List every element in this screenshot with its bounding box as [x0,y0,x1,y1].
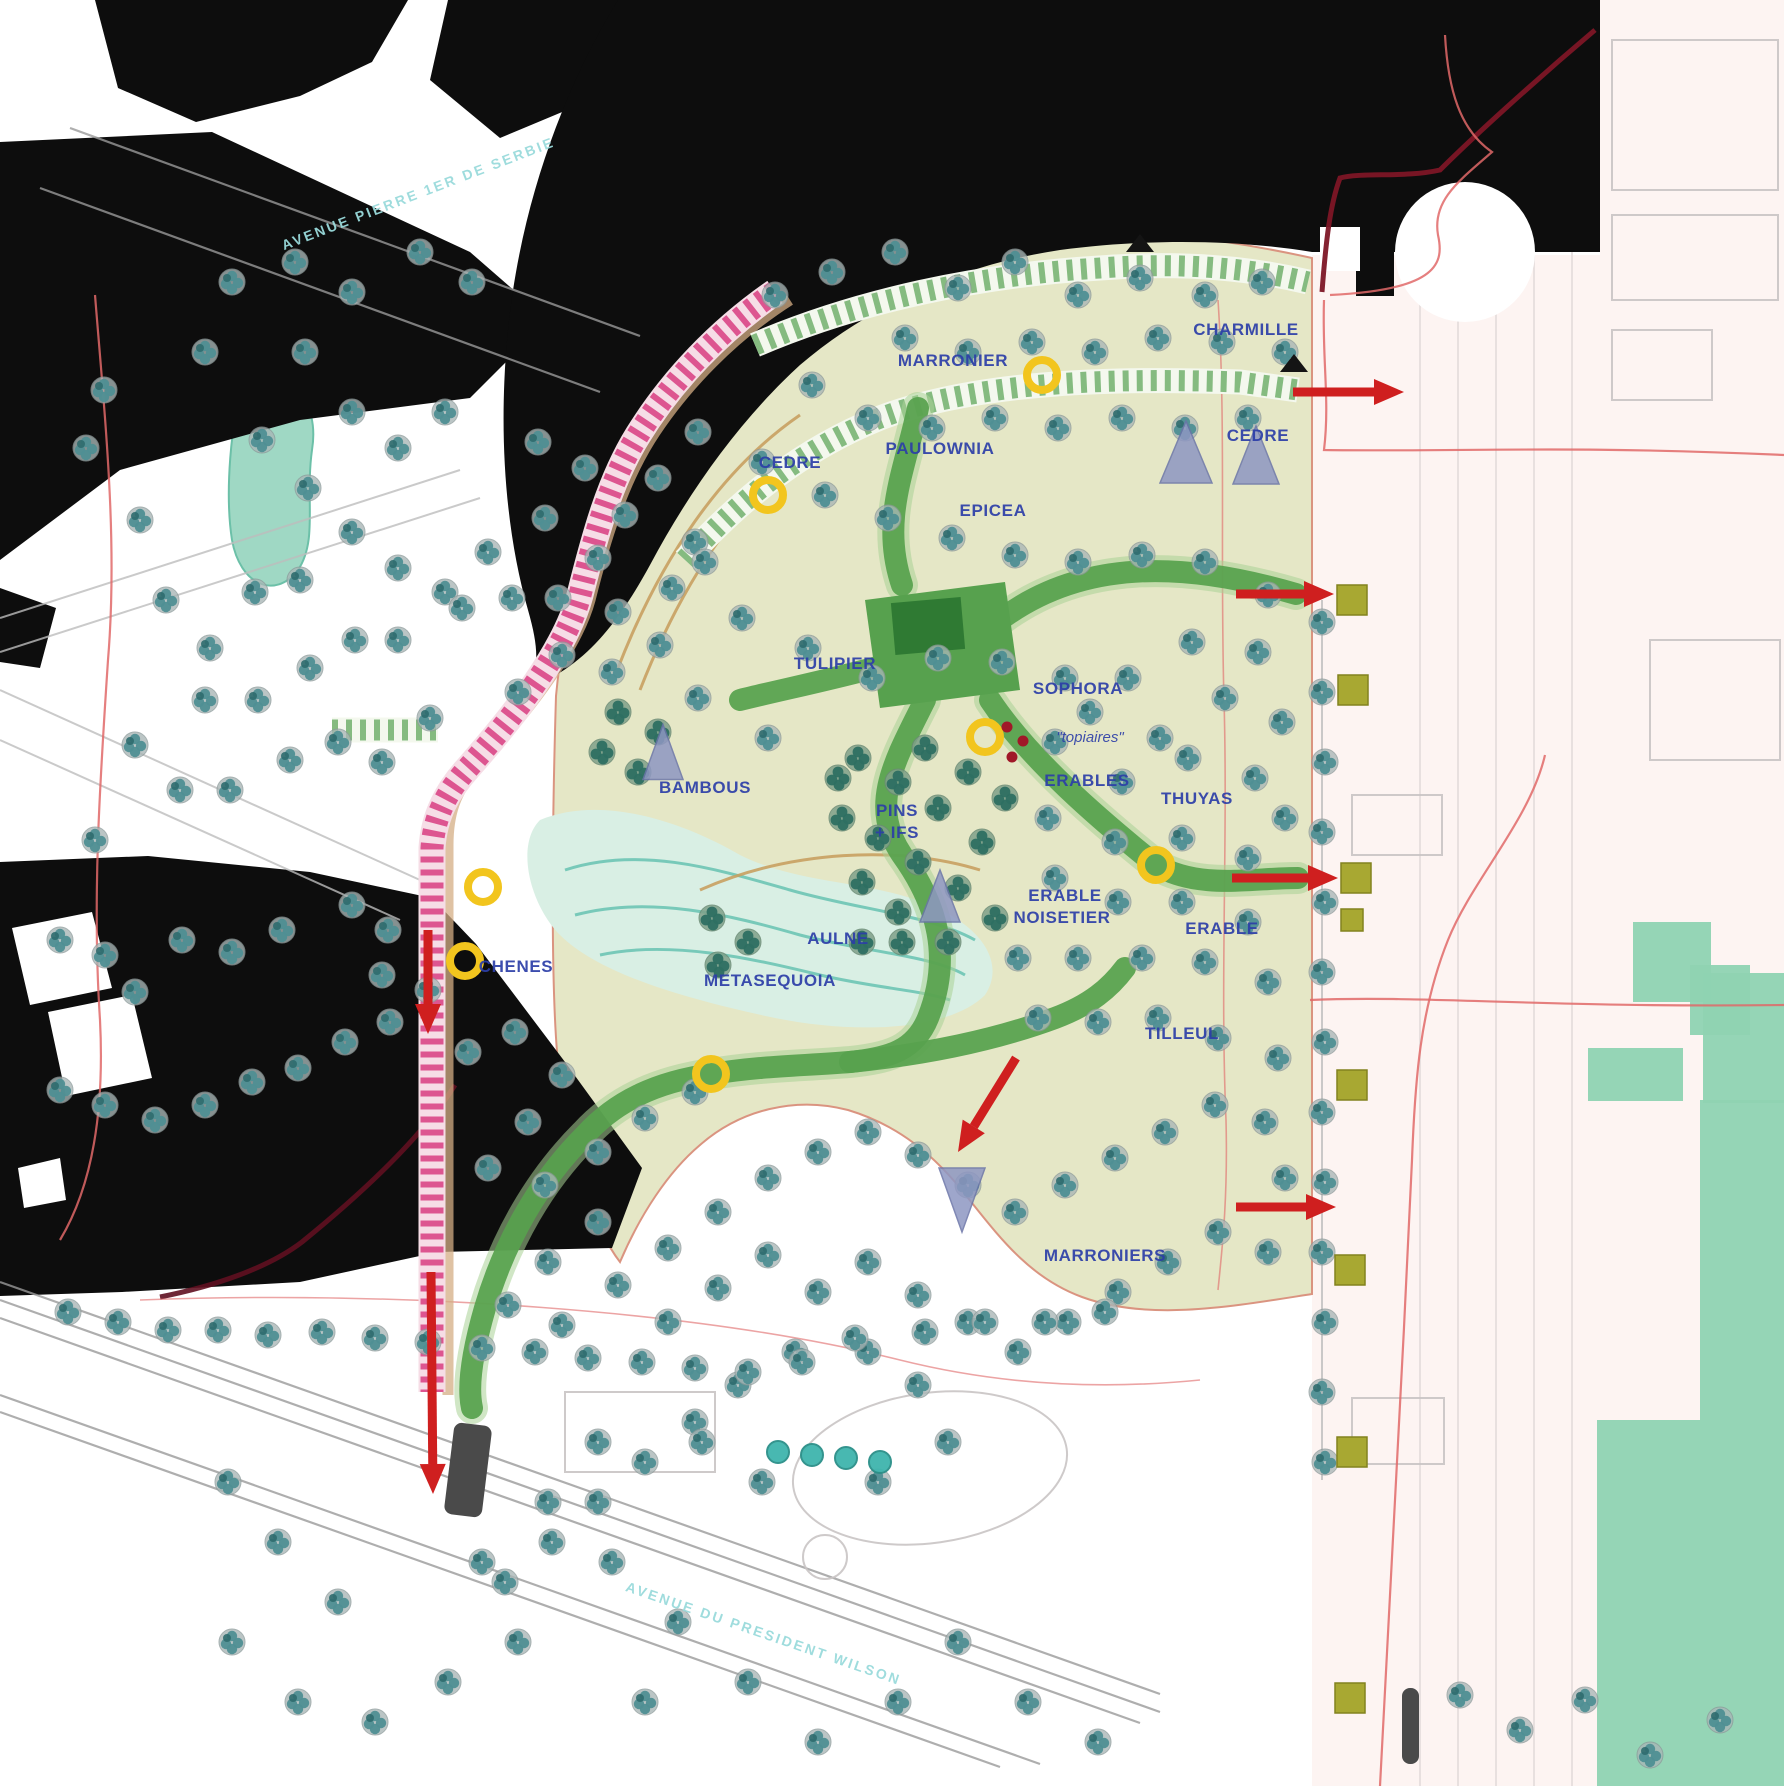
tree-symbol [339,279,365,305]
tree-symbol [1309,609,1335,635]
clipped-tree-symbol [869,1451,891,1473]
tree-symbol [532,1172,558,1198]
base-layer [0,0,1784,1786]
tree-symbol [735,1669,761,1695]
tree-symbol [632,1105,658,1131]
tree-symbol [1235,845,1261,871]
tree-symbol [1102,829,1128,855]
tree-symbol [1129,945,1155,971]
tree-symbol [749,1469,775,1495]
yellow-node-marker [468,872,498,902]
tree-symbol [1055,1309,1081,1335]
tree-symbol [1205,1219,1231,1245]
tree-symbol [585,1429,611,1455]
tree-symbol [632,1449,658,1475]
tree-symbol [1192,549,1218,575]
tree-symbol [505,1629,531,1655]
tree-symbol [362,1325,388,1351]
tree-symbol [892,325,918,351]
plant-label: ERABLE [1185,919,1259,938]
tree-symbol [1707,1707,1733,1733]
tree-symbol [655,1309,681,1335]
dense-tree-symbol [982,905,1008,931]
fountain-oval [565,1375,1077,1579]
tree-symbol [705,1199,731,1225]
olive-square-symbol [1337,1437,1367,1467]
tree-symbol [339,892,365,918]
tree-symbol [645,465,671,491]
plant-label: MARRONIERS [1044,1246,1166,1265]
dense-tree-symbol [925,795,951,821]
tree-symbol [215,1469,241,1495]
tree-symbol [647,632,673,658]
tree-symbol [1242,765,1268,791]
plant-label: THUYAS [1161,789,1233,808]
tree-symbol [475,539,501,565]
shelter-symbol [444,1422,493,1518]
tree-symbol [1212,685,1238,711]
tree-symbol [945,275,971,301]
dense-tree-symbol [992,785,1018,811]
tree-symbol [309,1319,335,1345]
tree-symbol [295,475,321,501]
olive-square-symbol [1337,585,1367,615]
tree-symbol [1052,1172,1078,1198]
tree-symbol [469,1335,495,1361]
tree-symbol [1085,1729,1111,1755]
tree-symbol [385,627,411,653]
tree-symbol [1309,959,1335,985]
dense-tree-symbol [735,929,761,955]
tree-symbol [122,979,148,1005]
building-block-a [95,0,408,122]
tree-symbol [1109,405,1135,431]
tree-symbol [1309,679,1335,705]
tree-symbol [1179,629,1205,655]
plant-label: CHARMILLE [1193,320,1299,339]
tree-symbol [1019,329,1045,355]
tree-symbol [1202,1092,1228,1118]
dense-tree-symbol [699,905,725,931]
tree-symbol [369,749,395,775]
tree-symbol [1249,269,1275,295]
tree-symbol [585,1139,611,1165]
tree-symbol [945,1629,971,1655]
clipped-tree-symbol [801,1444,823,1466]
pale-district-zone-top [1600,0,1784,255]
tree-symbol [755,1242,781,1268]
olive-square-symbol [1337,1070,1367,1100]
tree-symbol [799,372,825,398]
tree-symbol [729,605,755,631]
plant-label: MARRONIER [898,351,1008,370]
tree-symbol [82,827,108,853]
tree-symbol [1312,1029,1338,1055]
dense-tree-symbol [969,829,995,855]
arched-entrance [1395,182,1535,322]
dense-tree-symbol [829,805,855,831]
tree-symbol [142,1107,168,1133]
dense-tree-symbol [955,759,981,785]
tree-symbol [912,1319,938,1345]
tree-symbol [1272,1165,1298,1191]
tree-symbol [1309,1239,1335,1265]
topiary-dot [1007,752,1018,763]
tree-symbol [265,1529,291,1555]
tree-symbol [705,1275,731,1301]
dense-tree-symbol [849,869,875,895]
tree-symbol [545,585,571,611]
tree-symbol [1092,1299,1118,1325]
tree-symbol [197,635,223,661]
tree-symbol [495,1292,521,1318]
tree-symbol [1002,1199,1028,1225]
tree-symbol [122,732,148,758]
tree-symbol [1169,825,1195,851]
tree-symbol [632,1689,658,1715]
tree-symbol [1255,969,1281,995]
tree-symbol [245,687,271,713]
plant-label: METASEQUOIA [704,971,836,990]
tree-symbol [55,1299,81,1325]
tree-symbol [385,555,411,581]
tree-symbol [755,1165,781,1191]
tree-symbol [92,1092,118,1118]
tree-symbol [1102,1145,1128,1171]
tree-symbol [515,1109,541,1135]
tree-symbol [375,917,401,943]
tree-symbol [1045,415,1071,441]
tree-symbol [192,339,218,365]
dense-tree-symbol [825,765,851,791]
tree-symbol [605,1272,631,1298]
tree-symbol [1077,699,1103,725]
tree-symbol [655,1235,681,1261]
tree-symbol [92,942,118,968]
topiary-dot [1002,722,1013,733]
tree-symbol [1005,1339,1031,1365]
tree-symbol [435,1669,461,1695]
street-name-label: AVENUE DU PRESIDENT WILSON [624,1578,904,1688]
tree-symbol [239,1069,265,1095]
tree-symbol [805,1729,831,1755]
tree-symbol [325,729,351,755]
tree-symbol [342,627,368,653]
clipped-tree-symbol [767,1441,789,1463]
tree-symbol [332,1029,358,1055]
tree-symbol [205,1317,231,1343]
tree-symbol [1002,542,1028,568]
tree-symbol [819,259,845,285]
tree-symbol [1065,549,1091,575]
tree-symbol [339,399,365,425]
tree-symbol [417,705,443,731]
tree-symbol [219,1629,245,1655]
tree-symbol [522,1339,548,1365]
tree-symbol [192,687,218,713]
tree-symbol [935,1429,961,1455]
tree-symbol [1169,889,1195,915]
tree-symbol [535,1249,561,1275]
tree-symbol [297,655,323,681]
tree-symbol [882,239,908,265]
plan-canvas: MARRONIERCHARMILLEPAULOWNIACEDREEPICEACE… [0,0,1784,1786]
olive-square-symbol [1341,863,1371,893]
tree-symbol [549,1312,575,1338]
tree-symbol [599,659,625,685]
tree-symbol [1312,1309,1338,1335]
dense-tree-symbol [912,735,938,761]
tree-symbol [1572,1687,1598,1713]
tree-symbol [1272,805,1298,831]
tree-symbol [689,1429,715,1455]
tree-symbol [407,239,433,265]
tree-symbol [755,725,781,751]
tree-symbol [585,1489,611,1515]
tree-symbol [219,269,245,295]
site-plan-map: MARRONIERCHARMILLEPAULOWNIACEDREEPICEACE… [0,0,1784,1786]
tree-symbol [762,282,788,308]
tree-symbol [1637,1742,1663,1768]
tree-symbol [153,587,179,613]
tree-symbol [1309,1379,1335,1405]
tree-symbol [292,339,318,365]
tree-symbol [285,1689,311,1715]
tree-symbol [249,427,275,453]
tree-symbol [432,399,458,425]
tree-symbol [805,1279,831,1305]
tree-symbol [255,1322,281,1348]
tree-symbol [1065,282,1091,308]
topiary-dot [1018,736,1029,747]
tree-symbol [685,419,711,445]
tree-symbol [1015,1689,1041,1715]
tree-symbol [535,1489,561,1515]
plant-label: PAULOWNIA [886,439,995,458]
tree-symbol [812,482,838,508]
olive-square-symbol [1335,1255,1365,1285]
tree-symbol [599,1549,625,1575]
tree-symbol [692,549,718,575]
clipped-tree-symbol [835,1447,857,1469]
tree-symbol [47,1077,73,1103]
tree-symbol [285,1055,311,1081]
tree-symbol [1145,325,1171,351]
tree-symbol [549,1062,575,1088]
tree-symbol [1507,1717,1533,1743]
dense-tree-symbol [885,769,911,795]
tree-symbol [1152,1119,1178,1145]
plant-label: ERABLE [1028,886,1102,905]
tree-symbol [1447,1682,1473,1708]
tree-symbol [219,939,245,965]
dense-tree-symbol [589,739,615,765]
tree-symbol [499,585,525,611]
plant-label: SOPHORA [1033,679,1123,698]
tree-symbol [277,747,303,773]
tree-symbol [505,679,531,705]
tree-symbol [1085,1009,1111,1035]
tree-symbol [885,1689,911,1715]
tree-symbol [612,502,638,528]
tree-symbol [539,1529,565,1555]
tree-symbol [1269,709,1295,735]
plant-label: CEDRE [1227,426,1290,445]
tree-symbol [385,435,411,461]
tree-symbol [875,505,901,531]
tree-symbol [629,1349,655,1375]
tree-symbol [905,1282,931,1308]
tree-symbol [192,1092,218,1118]
tree-symbol [572,455,598,481]
access-arrow-head [420,1464,446,1494]
access-arrow-shaft [431,1272,433,1464]
tree-symbol [155,1317,181,1343]
tree-symbol [475,1155,501,1181]
tree-symbol [1032,1309,1058,1335]
tree-symbol [73,435,99,461]
tree-symbol [585,545,611,571]
dense-tree-symbol [605,699,631,725]
plant-label: EPICEA [960,501,1027,520]
tree-symbol [282,249,308,275]
tree-symbol [1035,805,1061,831]
tree-symbol [169,927,195,953]
tree-symbol [925,645,951,671]
plant-label: PINS [876,801,918,820]
tree-symbol [1175,745,1201,771]
tree-symbol [217,777,243,803]
plant-label: + IFS [875,823,919,842]
tree-symbol [1245,639,1271,665]
plant-label: ERABLES [1044,771,1129,790]
tree-symbol [1002,249,1028,275]
tree-symbol [685,685,711,711]
tree-symbol [982,405,1008,431]
tree-symbol [127,507,153,533]
tree-symbol [167,777,193,803]
tree-symbol [855,1249,881,1275]
tree-symbol [449,595,475,621]
dense-tree-symbol [905,849,931,875]
tree-symbol [905,1372,931,1398]
tree-symbol [905,1142,931,1168]
shelter-symbol [1402,1688,1419,1764]
tree-symbol [1252,1109,1278,1135]
tree-symbol [735,1359,761,1385]
tree-symbol [1309,1099,1335,1125]
tree-symbol [855,405,881,431]
tree-symbol [525,429,551,455]
dense-tree-symbol [889,929,915,955]
tree-symbol [1065,945,1091,971]
tree-symbol [682,1355,708,1381]
dense-tree-symbol [845,745,871,771]
tree-symbol [1312,889,1338,915]
tree-symbol [369,962,395,988]
tree-symbol [939,525,965,551]
plant-label: CHENES [479,957,553,976]
tree-symbol [789,1349,815,1375]
tree-symbol [1312,1449,1338,1475]
tree-symbol [492,1569,518,1595]
tree-symbol [502,1019,528,1045]
tree-symbol [972,1309,998,1335]
tree-symbol [989,649,1015,675]
tree-symbol [1312,749,1338,775]
tree-symbol [532,505,558,531]
plant-label: AULNE [807,929,869,948]
tree-symbol [1025,1005,1051,1031]
olive-square-symbol [1335,1683,1365,1713]
tree-symbol [605,599,631,625]
tree-symbol [1192,282,1218,308]
tree-symbol [325,1589,351,1615]
tree-symbol [269,917,295,943]
tree-symbol [105,1309,131,1335]
tree-symbol [47,927,73,953]
tree-symbol [1265,1045,1291,1071]
tree-symbol [459,269,485,295]
tree-symbol [659,575,685,601]
tree-symbol [1192,949,1218,975]
tree-symbol [1147,725,1173,751]
tree-symbol [1129,542,1155,568]
plant-label: BAMBOUS [659,778,751,797]
tree-symbol [455,1039,481,1065]
tree-symbol [855,1119,881,1145]
tree-symbol [549,642,575,668]
tree-symbol [1005,945,1031,971]
tree-symbol [805,1139,831,1165]
tree-symbol [339,519,365,545]
tree-symbol [842,1325,868,1351]
tree-symbol [919,415,945,441]
plant-label: NOISETIER [1013,908,1110,927]
tree-symbol [1312,1169,1338,1195]
tree-symbol [469,1549,495,1575]
tree-symbol [242,579,268,605]
tree-symbol [585,1209,611,1235]
tree-symbol [575,1345,601,1371]
tree-symbol [377,1009,403,1035]
plant-label: TILLEUL [1145,1024,1219,1043]
olive-square-symbol [1341,909,1363,931]
plant-label: CEDRE [759,453,822,472]
tree-symbol [91,377,117,403]
tree-symbol [1309,819,1335,845]
plant-label: TULIPIER [794,654,876,673]
tree-symbol [1082,339,1108,365]
dense-tree-symbol [885,899,911,925]
tree-symbol [287,567,313,593]
olive-square-symbol [1338,675,1368,705]
tree-symbol [1255,1239,1281,1265]
tree-symbol [362,1709,388,1735]
dense-tree-symbol [935,929,961,955]
annotation-label: "topiaires" [1056,729,1124,746]
tree-symbol [1127,265,1153,291]
